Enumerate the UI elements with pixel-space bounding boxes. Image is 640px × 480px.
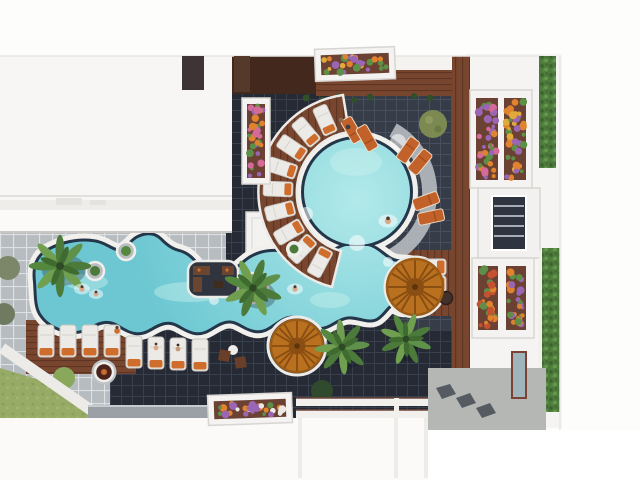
hedge-strip-north xyxy=(539,56,556,168)
bottom-roof xyxy=(0,418,430,480)
pool-aerial-render: Aerial top-down 3D rendering of a resort… xyxy=(0,0,640,480)
thatched-umbrella-south xyxy=(271,320,323,372)
rooftop-window xyxy=(234,56,250,92)
rooftop-window xyxy=(182,56,204,90)
fire-bowl xyxy=(92,360,117,385)
bottom-flower-planter xyxy=(208,393,293,426)
top-flower-planter xyxy=(314,47,395,82)
balcony-planter-box-north xyxy=(470,90,532,188)
ground-window xyxy=(512,352,526,398)
balcony-planter-box-south xyxy=(472,258,534,338)
thatched-umbrella-east xyxy=(387,259,443,315)
balcony-bay-planter xyxy=(242,98,270,184)
window-unit xyxy=(478,188,540,258)
